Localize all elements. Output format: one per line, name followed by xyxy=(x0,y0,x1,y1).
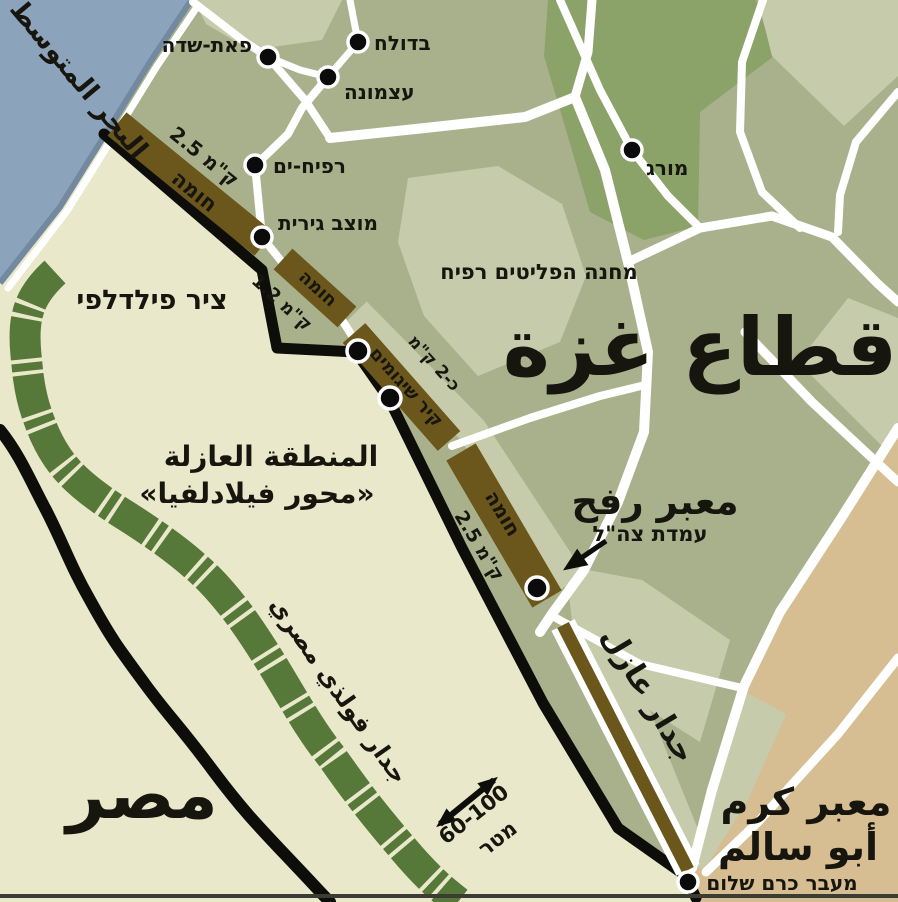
settlement-dot-bedolah xyxy=(348,32,368,52)
rafah-crossing-label: معبر رفح xyxy=(572,480,739,523)
buffer-zone-label-line2: «محور فيلادلفيا» xyxy=(139,477,374,510)
idf-position-dot xyxy=(526,577,548,599)
philadelphi-route-label: ציר פילדלפי xyxy=(76,285,227,316)
settlement-dot-peat-sadeh xyxy=(258,47,278,67)
settlement-dot-atzmona xyxy=(318,67,338,87)
settlement-label-morag: מורג xyxy=(646,156,688,180)
kerem-abu-salem-label-line2: أبو سالم xyxy=(718,822,878,870)
egypt-label: مصر xyxy=(63,756,217,835)
settlement-label-peat-sadeh: פאת-שדה xyxy=(162,33,252,57)
buffer-zone-label-line1: المنطقة العازلة xyxy=(164,440,379,473)
settlement-label-bedolah: בדולח xyxy=(374,31,431,55)
kerem-abu-salem-label-line1: معبر كرم xyxy=(721,780,892,825)
settlement-dot-rafiah-yam xyxy=(245,155,265,175)
map-canvas: البحر المتوسط قطاع غزة مصر ציר פילדלפי ا… xyxy=(0,0,898,902)
refugee-camp-label: מחנה הפליטים רפיח xyxy=(440,260,637,284)
settlement-dot-girit xyxy=(252,227,272,247)
border-point-dot-1 xyxy=(347,340,369,362)
settlement-dot-morag xyxy=(622,140,642,160)
settlement-label-rafiah-yam: רפיח-ים xyxy=(273,154,346,178)
kerem-shalom-dot xyxy=(678,872,698,892)
kerem-shalom-label: מעבר כרם שלום xyxy=(706,871,857,895)
settlement-label-girit: מוצב גירית xyxy=(278,211,378,235)
gaza-strip-label: قطاع غزة xyxy=(503,301,898,395)
gaza-philadelphi-map: البحر المتوسط قطاع غزة مصر ציר פילדלפי ا… xyxy=(0,0,898,902)
settlement-label-atzmona: עצמונה xyxy=(344,80,415,104)
idf-position-label: עמדת צה"ל xyxy=(593,522,708,546)
